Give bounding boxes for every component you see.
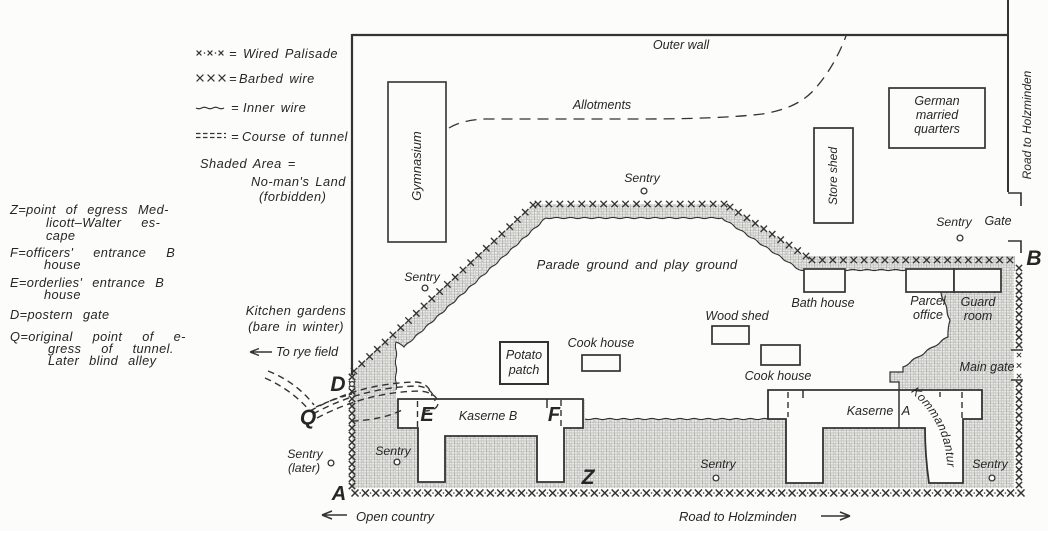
svg-text:house: house <box>44 257 81 272</box>
svg-text:room: room <box>964 309 992 323</box>
svg-text:A: A <box>901 403 911 418</box>
svg-text:(bare in winter): (bare in winter) <box>248 319 344 334</box>
svg-text:Kitchen gardens: Kitchen gardens <box>246 303 347 318</box>
svg-text:=: = <box>231 129 239 144</box>
svg-text:D: D <box>330 373 345 396</box>
svg-text:cape: cape <box>46 228 75 243</box>
svg-text:E=orderlies' entrance B: E=orderlies' entrance B <box>10 275 164 290</box>
svg-text:Gymnasium: Gymnasium <box>409 131 424 201</box>
svg-text:(later): (later) <box>288 461 320 475</box>
svg-text:Cook house: Cook house <box>745 369 812 383</box>
svg-text:Main gate: Main gate <box>960 360 1015 374</box>
svg-text:Parcel: Parcel <box>910 294 947 308</box>
svg-text:Course of tunnel: Course of tunnel <box>242 129 349 144</box>
svg-text:Wood shed: Wood shed <box>705 309 769 323</box>
svg-text:B: B <box>1026 247 1041 270</box>
svg-text:Z: Z <box>581 466 596 489</box>
svg-text:D=postern gate: D=postern gate <box>10 307 109 322</box>
svg-text:Sentry: Sentry <box>624 171 660 185</box>
svg-text:Bath house: Bath house <box>791 296 854 310</box>
svg-text:married: married <box>916 108 959 122</box>
svg-text:(forbidden): (forbidden) <box>259 189 326 204</box>
svg-text:Road to Holzminden: Road to Holzminden <box>1020 70 1034 179</box>
svg-text:Potato: Potato <box>506 348 542 362</box>
svg-text:quarters: quarters <box>914 122 960 136</box>
svg-text:To rye field: To rye field <box>276 344 339 359</box>
svg-text:Later blind alley: Later blind alley <box>48 353 158 368</box>
svg-text:Allotments: Allotments <box>572 98 631 112</box>
svg-text:E: E <box>420 404 434 426</box>
svg-text:patch: patch <box>508 363 540 377</box>
svg-text:Q: Q <box>300 406 316 429</box>
svg-text:Road to Holzminden: Road to Holzminden <box>679 509 797 524</box>
svg-text:German: German <box>914 94 959 108</box>
svg-text:office: office <box>913 308 943 322</box>
svg-text:Sentry: Sentry <box>936 215 972 229</box>
svg-text:Shaded Area =: Shaded Area = <box>200 156 296 171</box>
svg-text:=: = <box>231 100 239 115</box>
svg-text:Open country: Open country <box>356 509 436 524</box>
svg-text:Parade ground and play ground: Parade ground and play ground <box>537 257 738 272</box>
svg-text:Gate: Gate <box>984 214 1011 228</box>
svg-text:Sentry: Sentry <box>287 447 323 461</box>
svg-text:A: A <box>331 483 346 505</box>
svg-text:No-man's Land: No-man's Land <box>251 174 346 189</box>
svg-text:Store shed: Store shed <box>826 147 840 205</box>
svg-text:Sentry: Sentry <box>404 270 440 284</box>
svg-text:Wired Palisade: Wired Palisade <box>243 46 338 61</box>
svg-text:Sentry: Sentry <box>972 457 1008 471</box>
svg-text:F=officers' entrance B: F=officers' entrance B <box>10 245 175 260</box>
svg-text:Sentry: Sentry <box>375 444 411 458</box>
svg-text:=: = <box>229 71 237 86</box>
svg-text:Outer wall: Outer wall <box>653 38 710 52</box>
svg-text:Inner wire: Inner wire <box>243 100 306 115</box>
svg-text:Kaserne: Kaserne <box>847 404 894 418</box>
svg-text:Sentry: Sentry <box>700 457 736 471</box>
svg-text:F: F <box>548 404 561 426</box>
svg-text:Kaserne B: Kaserne B <box>459 409 517 423</box>
svg-text:=: = <box>229 46 237 61</box>
svg-text:Guard: Guard <box>961 295 997 309</box>
svg-text:house: house <box>44 287 81 302</box>
svg-text:Cook house: Cook house <box>568 336 635 350</box>
svg-text:Barbed wire: Barbed wire <box>239 71 315 86</box>
